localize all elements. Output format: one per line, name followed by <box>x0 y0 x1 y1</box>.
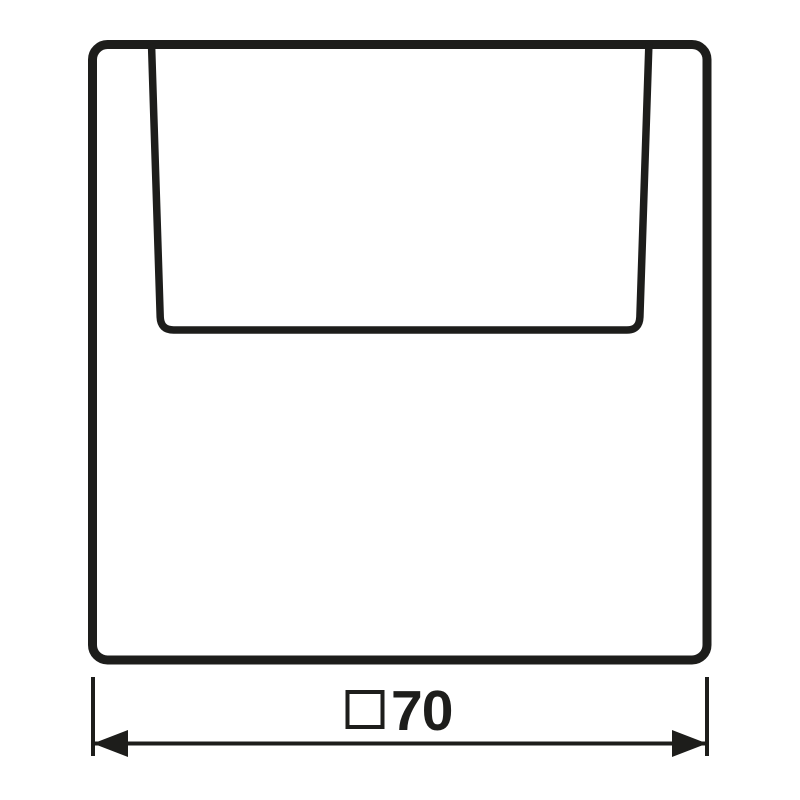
dimension-annotation: 70 <box>93 677 707 757</box>
dimension-drawing: 70 <box>0 0 800 800</box>
cover-plate-outline <box>93 45 708 661</box>
dimension-square-symbol <box>348 692 383 727</box>
drawing-canvas: 70 <box>0 0 800 800</box>
card-slot-outline <box>152 44 649 330</box>
dimension-value-label: 70 <box>391 679 452 743</box>
dimension-arrowhead-right <box>672 730 707 757</box>
dimension-arrowhead-left <box>93 730 128 757</box>
